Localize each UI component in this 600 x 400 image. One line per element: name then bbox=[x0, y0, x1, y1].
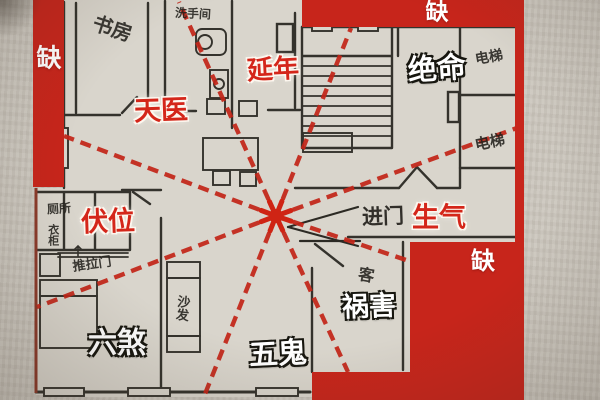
sofa-label: 沙发 bbox=[174, 294, 190, 321]
sliding-door-label: 推拉门 bbox=[72, 255, 113, 274]
que-bottom-right-label: 缺 bbox=[471, 250, 495, 274]
huohai-label: 祸害 bbox=[342, 293, 397, 322]
washroom-label: 洗手间 bbox=[175, 7, 212, 21]
juemin-label: 绝命 bbox=[407, 54, 467, 87]
yannian-label: 延年 bbox=[246, 55, 299, 84]
wardrobe-label: 衣柜 bbox=[46, 224, 58, 246]
wugui-label: 五鬼 bbox=[248, 339, 307, 371]
fuwei-label: 伏位 bbox=[81, 208, 136, 237]
liusha-label: 六煞 bbox=[88, 330, 146, 359]
elevator-2-label: 电梯 bbox=[474, 132, 507, 154]
jinmen-label: 进门 bbox=[362, 206, 405, 228]
study-label: 书房 bbox=[90, 14, 135, 46]
toilet-label: 厕所 bbox=[47, 202, 72, 216]
living-room-label: 客 bbox=[357, 267, 376, 286]
que-left-label: 缺 bbox=[36, 47, 61, 72]
elevator-1-label: 电梯 bbox=[474, 47, 504, 66]
feng-shui-floorplan-photo: 天医延年绝命伏位生气祸害五鬼六煞进门缺缺缺书房洗手间电梯电梯厕所衣柜推拉门沙发客 bbox=[0, 0, 600, 400]
que-top-label: 缺 bbox=[426, 1, 449, 24]
tianyi-label: 天医 bbox=[134, 97, 189, 126]
shengqi-label: 生气 bbox=[412, 205, 466, 232]
labels-layer: 天医延年绝命伏位生气祸害五鬼六煞进门缺缺缺书房洗手间电梯电梯厕所衣柜推拉门沙发客 bbox=[0, 0, 600, 400]
